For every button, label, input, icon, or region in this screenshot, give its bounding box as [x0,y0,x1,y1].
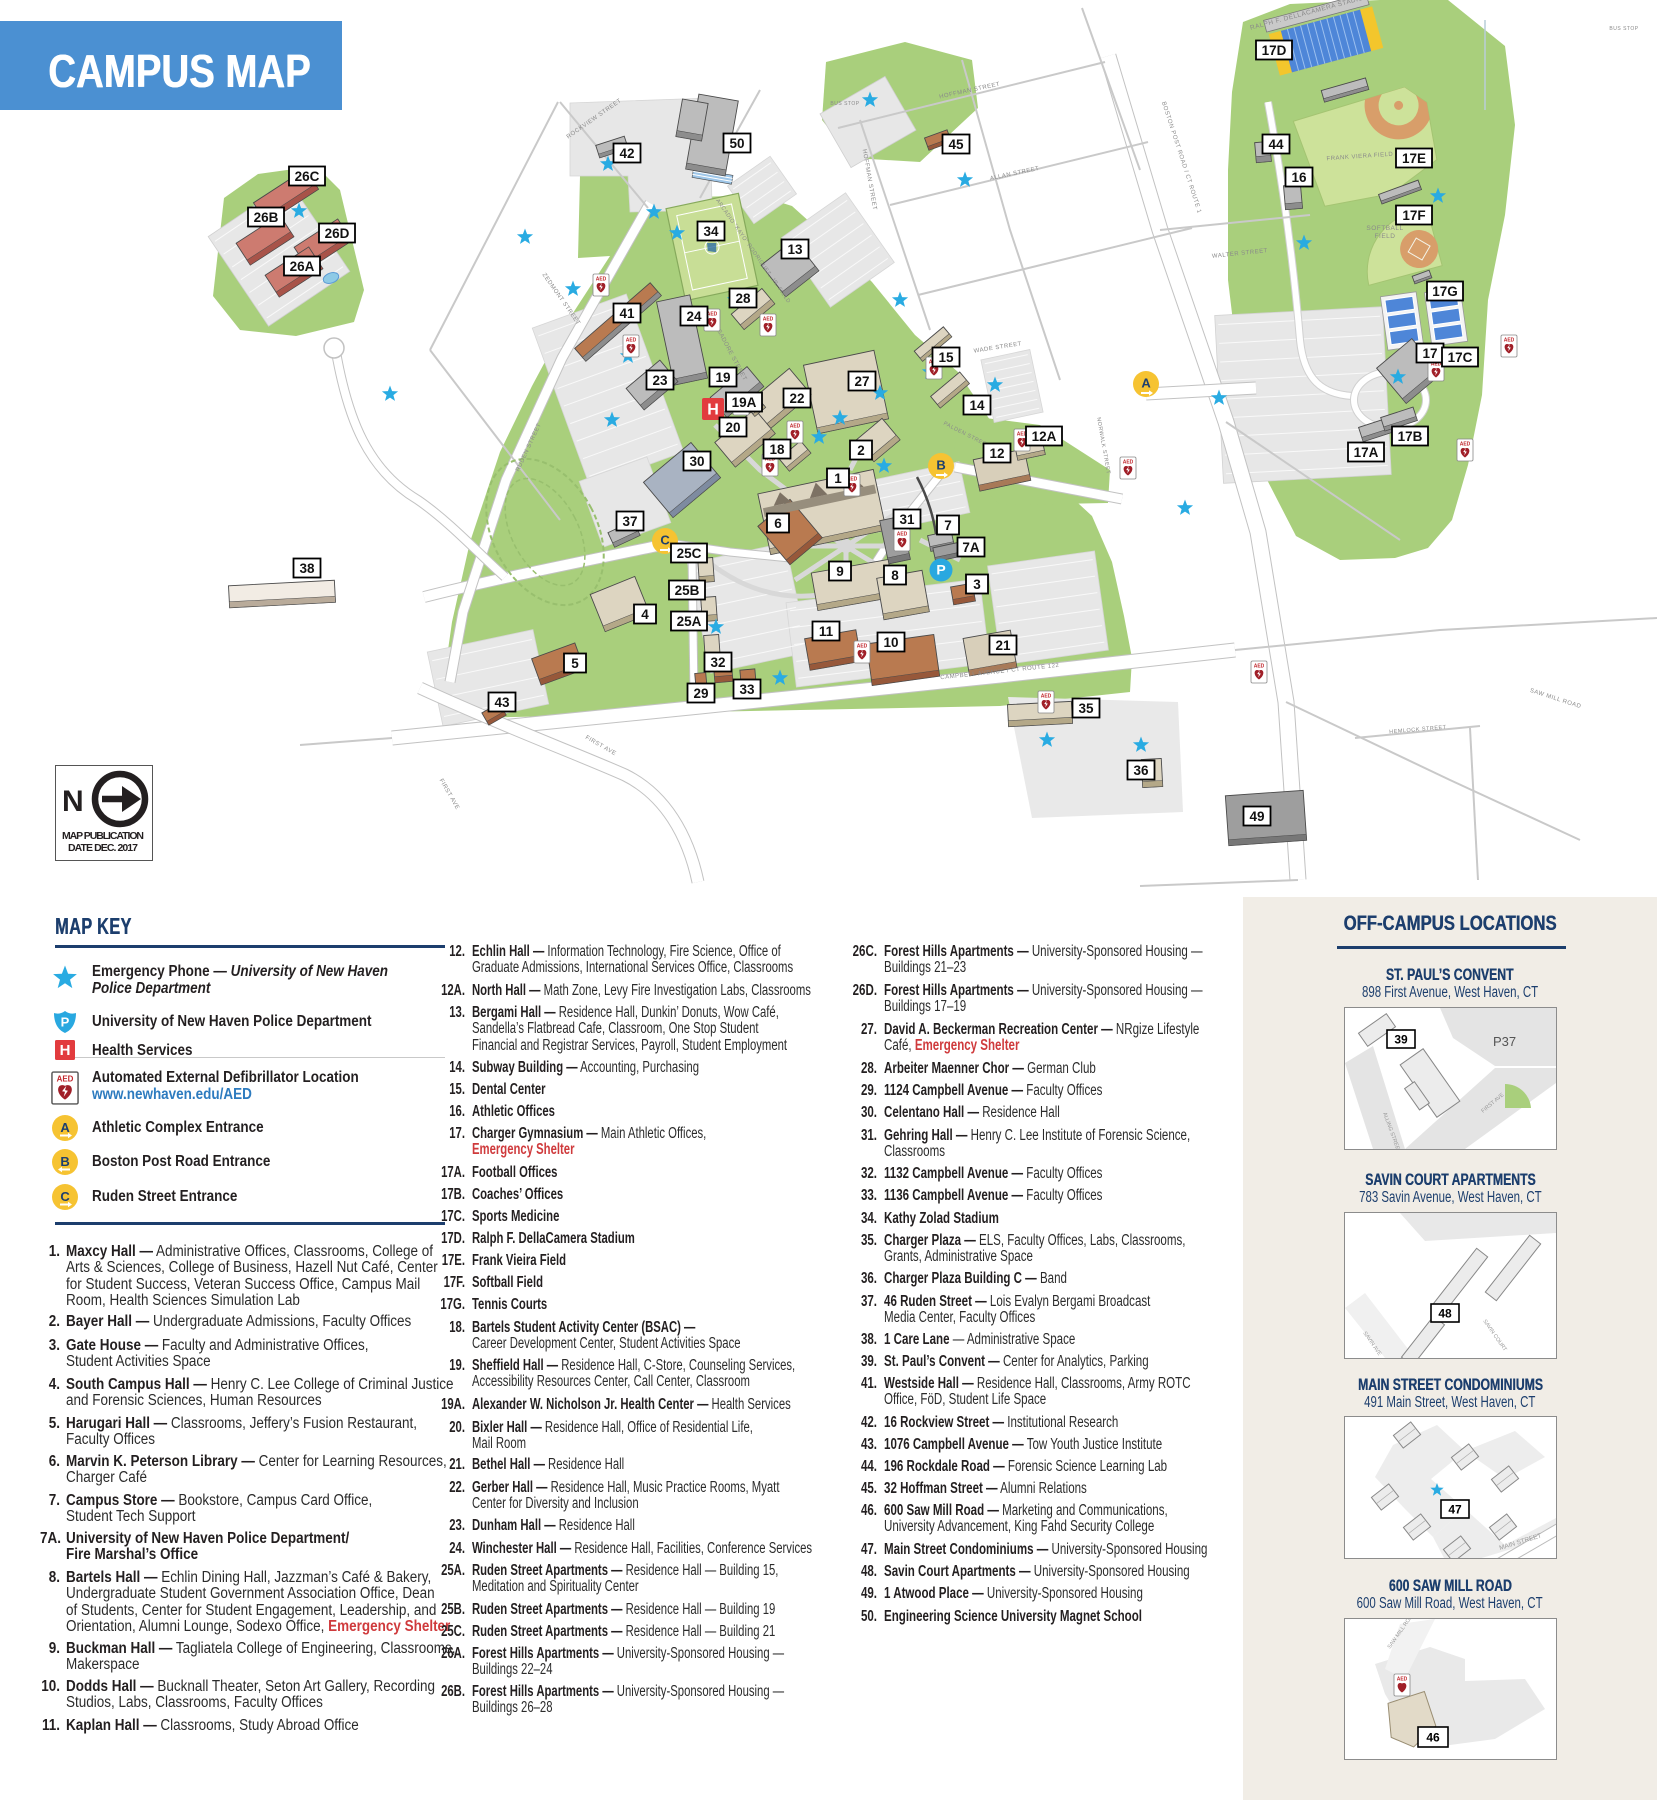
svg-text:15: 15 [938,350,954,365]
svg-text:42: 42 [619,146,634,161]
svg-text:17D: 17D [1262,43,1287,58]
svg-text:31: 31 [899,512,915,527]
svg-text:AED: AED [626,338,637,344]
svg-text:17B: 17B [1398,429,1423,444]
svg-text:17A: 17A [1354,445,1379,460]
svg-text:36: 36 [1133,763,1149,778]
svg-text:8: 8 [891,568,899,583]
svg-text:45: 45 [948,137,964,152]
svg-text:38: 38 [299,561,315,576]
svg-text:AED: AED [897,532,908,538]
svg-text:AED: AED [1504,338,1515,344]
svg-text:9: 9 [836,564,844,579]
svg-text:FIELD: FIELD [1375,233,1396,240]
svg-text:17: 17 [1422,346,1437,361]
svg-text:AED: AED [1041,694,1052,700]
svg-text:48: 48 [1438,1307,1452,1321]
svg-text:25C: 25C [677,546,702,561]
svg-text:34: 34 [703,224,719,239]
svg-text:B: B [60,1154,69,1169]
svg-text:24: 24 [686,309,702,324]
svg-text:AED: AED [1123,460,1134,466]
svg-text:SOFTBALL: SOFTBALL [1366,225,1403,232]
svg-text:4: 4 [641,607,649,622]
svg-text:33: 33 [739,682,755,697]
svg-text:DATE DEC. 2017: DATE DEC. 2017 [68,842,138,854]
svg-text:AED: AED [1460,442,1471,448]
svg-text:13: 13 [787,242,803,257]
svg-text:25B: 25B [675,583,700,598]
svg-text:26A: 26A [290,259,315,274]
svg-text:17E: 17E [1402,151,1426,166]
svg-text:BOSTON POST ROAD / CT ROUTE 1: BOSTON POST ROAD / CT ROUTE 1 [1160,101,1202,214]
svg-text:25A: 25A [677,614,702,629]
svg-text:C: C [660,533,670,548]
svg-text:37: 37 [622,514,637,529]
svg-text:29: 29 [693,686,708,701]
svg-text:BUS STOP: BUS STOP [1609,26,1638,32]
svg-text:P: P [61,1015,70,1030]
svg-text:AED: AED [763,317,774,323]
svg-text:AED: AED [857,644,868,650]
svg-text:35: 35 [1078,701,1094,716]
svg-text:AED: AED [57,1074,74,1083]
svg-text:50: 50 [729,136,744,151]
svg-text:SAW MILL ROAD: SAW MILL ROAD [1529,688,1582,710]
svg-text:49: 49 [1249,809,1264,824]
svg-text:19: 19 [715,370,730,385]
svg-text:14: 14 [969,398,985,413]
svg-text:16: 16 [1291,170,1307,185]
svg-text:44: 44 [1268,137,1284,152]
svg-text:17F: 17F [1402,208,1425,223]
svg-text:5: 5 [571,656,579,671]
svg-text:MAP PUBLICATION: MAP PUBLICATION [62,830,144,842]
svg-text:7A: 7A [962,540,980,555]
svg-text:AED: AED [1254,664,1265,670]
svg-text:10: 10 [883,635,898,650]
svg-text:20: 20 [725,420,740,435]
svg-text:18: 18 [769,442,785,457]
svg-text:A: A [60,1120,70,1135]
svg-text:26C: 26C [295,169,320,184]
svg-text:1: 1 [834,471,842,486]
svg-text:AED: AED [790,424,801,430]
svg-text:23: 23 [652,373,668,388]
svg-text:H: H [707,402,719,419]
svg-text:3: 3 [973,577,981,592]
svg-text:H: H [60,1042,71,1059]
svg-text:B: B [936,458,945,473]
svg-text:26B: 26B [254,210,279,225]
svg-text:2: 2 [857,443,865,458]
svg-text:A: A [1141,376,1151,391]
svg-text:BUS STOP: BUS STOP [830,101,859,107]
svg-text:12: 12 [989,446,1004,461]
svg-text:7: 7 [944,518,952,533]
svg-text:46: 46 [1426,1731,1440,1745]
svg-text:32: 32 [710,655,725,670]
svg-text:21: 21 [995,638,1011,653]
svg-text:P37: P37 [1493,1034,1516,1049]
svg-text:C: C [60,1189,70,1204]
svg-text:17C: 17C [1448,350,1473,365]
svg-text:11: 11 [819,624,834,639]
svg-text:19A: 19A [732,395,757,410]
svg-text:N: N [62,785,84,818]
svg-text:ALLAN STREET: ALLAN STREET [990,166,1041,182]
svg-text:43: 43 [494,695,510,710]
svg-text:27: 27 [854,374,869,389]
svg-text:12A: 12A [1032,429,1057,444]
svg-text:6: 6 [774,516,782,531]
svg-text:P: P [936,562,945,578]
svg-text:HEMLOCK STREET: HEMLOCK STREET [1389,725,1447,736]
svg-text:AED: AED [596,277,607,283]
svg-text:28: 28 [735,291,751,306]
svg-text:41: 41 [619,306,635,321]
svg-text:22: 22 [789,391,804,406]
svg-text:30: 30 [689,454,704,469]
svg-text:17G: 17G [1432,284,1458,299]
svg-text:26D: 26D [325,226,350,241]
svg-text:AED: AED [1397,1677,1408,1683]
svg-text:FIRST AVE: FIRST AVE [438,778,461,811]
svg-text:47: 47 [1448,1503,1462,1517]
svg-text:39: 39 [1394,1033,1408,1047]
